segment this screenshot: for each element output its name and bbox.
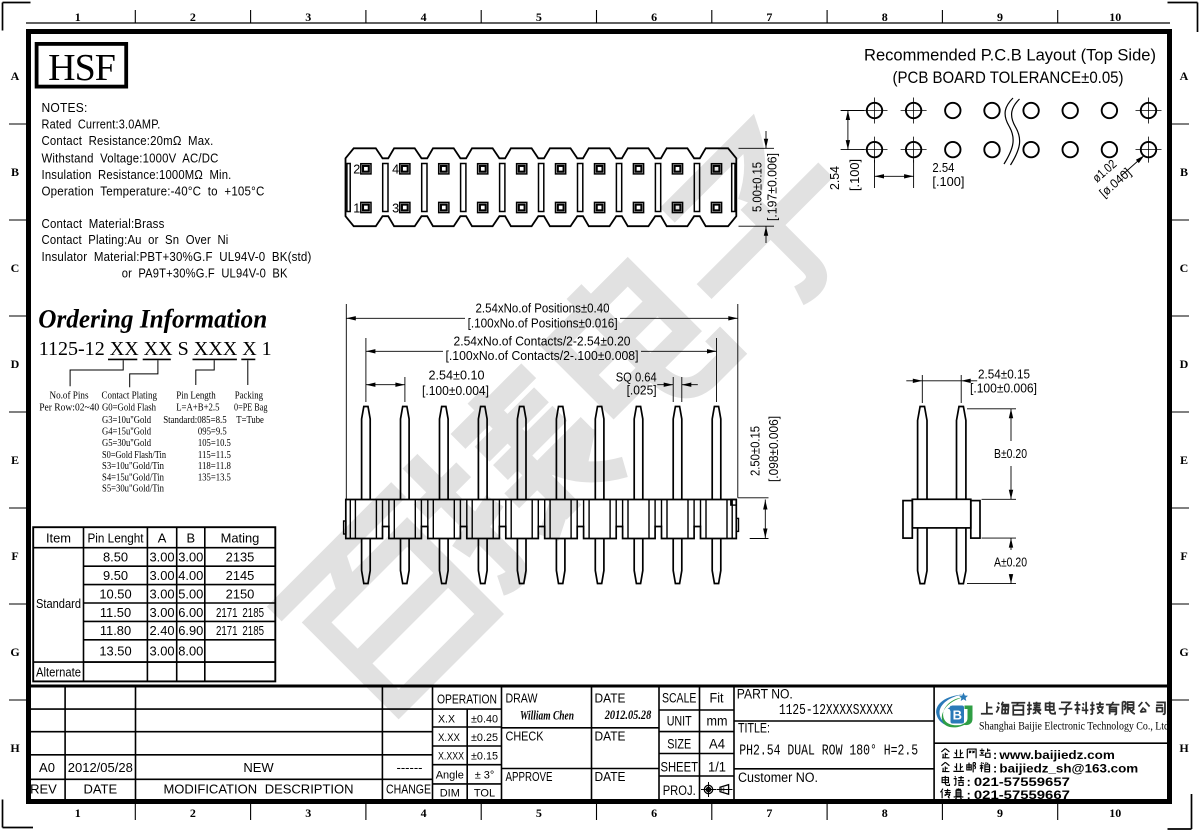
svg-text:Ordering Information: Ordering Information — [38, 304, 267, 334]
svg-text:6: 6 — [651, 806, 657, 820]
svg-text:1: 1 — [75, 10, 81, 24]
svg-text:A4: A4 — [709, 737, 725, 752]
svg-text:PART NO.: PART NO. — [737, 687, 793, 702]
svg-text:mm: mm — [707, 714, 728, 729]
svg-text:6.90: 6.90 — [178, 623, 203, 638]
svg-text:Withstand Voltage:1000V AC/DC: Withstand Voltage:1000V AC/DC — [42, 152, 219, 166]
svg-text:Insulator Material:PBT+30%G.F: Insulator Material:PBT+30%G.F UL94V-0 BK… — [42, 250, 312, 264]
svg-text:Packing: Packing — [235, 390, 264, 402]
svg-text:2.54: 2.54 — [932, 161, 954, 175]
svg-text:3.00: 3.00 — [149, 644, 174, 659]
svg-text:1/1: 1/1 — [708, 760, 726, 775]
svg-text:2012/05/28: 2012/05/28 — [68, 760, 133, 775]
svg-text:±0.25: ±0.25 — [471, 732, 498, 744]
svg-text:No.of Pins: No.of Pins — [50, 390, 89, 402]
svg-text:CHECK: CHECK — [506, 729, 544, 744]
svg-text:Rated Current:3.0AMP.: Rated Current:3.0AMP. — [42, 118, 161, 132]
svg-text:A: A — [11, 69, 20, 83]
svg-text:105=10.5: 105=10.5 — [198, 437, 231, 449]
svg-text:Insulation Resistance:1000MΩ M: Insulation Resistance:1000MΩ Min. — [42, 168, 232, 182]
svg-text:3.00: 3.00 — [149, 605, 174, 620]
svg-text:C: C — [1180, 261, 1189, 275]
svg-text:2.54xNo.of Positions±0.40: 2.54xNo.of Positions±0.40 — [476, 301, 610, 316]
svg-text:1125-12XXXXSXXXXX: 1125-12XXXXSXXXXX — [779, 703, 893, 719]
svg-text:PROJ.: PROJ. — [663, 783, 696, 798]
svg-text:B: B — [186, 531, 195, 546]
svg-text::: : — [993, 748, 997, 762]
svg-text:8: 8 — [882, 806, 888, 820]
svg-text:Mating: Mating — [221, 531, 260, 546]
svg-text:B: B — [953, 708, 962, 723]
svg-text:Alternate: Alternate — [36, 664, 81, 679]
svg-text:www.baijiedz.com: www.baijiedz.com — [998, 748, 1114, 762]
svg-text:[.025]: [.025] — [627, 383, 657, 398]
svg-text:4: 4 — [421, 10, 427, 24]
svg-text:3: 3 — [305, 10, 311, 24]
svg-text:±0.15: ±0.15 — [471, 751, 498, 763]
svg-text:A0: A0 — [39, 760, 55, 775]
svg-text:C: C — [11, 261, 20, 275]
svg-text:118=11.8: 118=11.8 — [198, 460, 231, 472]
svg-text:Pin Lenght: Pin Lenght — [88, 531, 144, 546]
svg-text:MODIFICATION DESCRIPTION: MODIFICATION DESCRIPTION — [163, 782, 353, 797]
svg-text:DRAW: DRAW — [506, 691, 539, 706]
svg-text:DIM: DIM — [440, 788, 460, 800]
svg-text:X.XXX: X.XXX — [438, 751, 465, 763]
svg-text:1: 1 — [75, 806, 81, 820]
svg-text:2171 2185: 2171 2185 — [216, 605, 264, 620]
svg-text:S5=30u"Gold/Tin: S5=30u"Gold/Tin — [102, 483, 164, 495]
svg-text:10.50: 10.50 — [99, 586, 131, 601]
svg-text:[.100±0.006]: [.100±0.006] — [970, 382, 1037, 396]
svg-text:SIZE: SIZE — [667, 737, 691, 752]
svg-text:G5=30u"Gold: G5=30u"Gold — [102, 437, 151, 449]
svg-text:9: 9 — [997, 10, 1003, 24]
svg-text:7: 7 — [766, 806, 772, 820]
svg-text:Contact Resistance:20mΩ Max.: Contact Resistance:20mΩ Max. — [42, 134, 214, 148]
svg-text:G3=10u"Gold: G3=10u"Gold — [102, 414, 151, 426]
svg-text::: : — [993, 762, 997, 776]
svg-text:D: D — [1180, 357, 1189, 371]
svg-text:X.X: X.X — [438, 713, 456, 725]
svg-text:or PA9T+30%G.F UL94V-0 BK: or PA9T+30%G.F UL94V-0 BK — [122, 266, 288, 280]
svg-text:DATE: DATE — [83, 782, 117, 797]
svg-text:Pin Length: Pin Length — [176, 390, 216, 402]
svg-text:Angle: Angle — [436, 770, 464, 782]
svg-text:2: 2 — [190, 806, 196, 820]
svg-text:9: 9 — [997, 806, 1003, 820]
svg-text:NEW: NEW — [243, 760, 274, 775]
svg-text:(PCB BOARD TOLERANCE±0.05): (PCB BOARD TOLERANCE±0.05) — [893, 68, 1124, 87]
svg-text:7: 7 — [766, 10, 772, 24]
svg-text:L=A+B+2.5: L=A+B+2.5 — [176, 402, 220, 414]
svg-text:Operation Temperature:-40°C to: Operation Temperature:-40°C to +105°C — [42, 185, 265, 199]
svg-text:2.54xNo.of Contacts/2-2.54±0.2: 2.54xNo.of Contacts/2-2.54±0.20 — [454, 333, 631, 348]
svg-text:REV: REV — [30, 782, 57, 797]
svg-text:B±0.20: B±0.20 — [994, 447, 1027, 461]
svg-text:±0.40: ±0.40 — [471, 713, 498, 725]
svg-text:G: G — [1179, 645, 1188, 659]
svg-text:------: ------ — [397, 760, 423, 775]
svg-text:Customer NO.: Customer NO. — [738, 770, 818, 785]
svg-text:HSF: HSF — [48, 47, 115, 89]
svg-text:[.100±0.004]: [.100±0.004] — [422, 383, 489, 398]
svg-text:[.100]: [.100] — [932, 175, 964, 189]
svg-text:baijiedz_sh@163.com: baijiedz_sh@163.com — [999, 762, 1138, 776]
svg-text:2: 2 — [353, 163, 360, 177]
svg-text:Contact Plating: Contact Plating — [102, 390, 158, 402]
svg-text:DATE: DATE — [595, 729, 626, 744]
svg-text:William Chen: William Chen — [520, 709, 574, 723]
svg-text:2.54±0.10: 2.54±0.10 — [429, 368, 485, 383]
svg-text:[.100]: [.100] — [848, 159, 862, 191]
svg-text:CHANGE: CHANGE — [386, 782, 431, 797]
svg-text:F: F — [11, 549, 18, 563]
svg-text:8.50: 8.50 — [103, 550, 128, 565]
svg-text:PH2.54 DUAL ROW 180° H=2.5: PH2.54 DUAL ROW 180° H=2.5 — [739, 744, 918, 760]
svg-text:4.00: 4.00 — [178, 568, 203, 583]
svg-text:021-57559667: 021-57559667 — [974, 788, 1070, 802]
svg-text:H: H — [1179, 741, 1189, 755]
svg-text:TITLE:: TITLE: — [738, 721, 770, 736]
svg-text:2.54±0.15: 2.54±0.15 — [978, 368, 1030, 382]
svg-text:11.80: 11.80 — [100, 623, 131, 638]
svg-text:13.50: 13.50 — [99, 644, 131, 659]
svg-text:A: A — [158, 531, 167, 546]
svg-text:1125-12 XX XX S XXX X 1: 1125-12 XX XX S XXX X 1 — [39, 338, 272, 360]
svg-text:G: G — [10, 645, 19, 659]
svg-text:0=PE Bag: 0=PE Bag — [234, 402, 268, 414]
svg-text:2.50±0.15: 2.50±0.15 — [749, 426, 763, 476]
svg-text:Item: Item — [46, 531, 71, 546]
svg-text:Fit: Fit — [710, 691, 724, 706]
svg-text:5: 5 — [536, 806, 542, 820]
svg-text:2150: 2150 — [226, 586, 255, 601]
svg-text:OPERATION: OPERATION — [437, 692, 497, 707]
svg-text:E: E — [1180, 453, 1188, 467]
svg-text:2.40: 2.40 — [149, 623, 174, 638]
svg-text:Standard: Standard — [36, 596, 81, 611]
svg-text:± 3°: ± 3° — [475, 770, 495, 782]
svg-text:4: 4 — [392, 163, 399, 177]
svg-text:2145: 2145 — [226, 568, 255, 583]
svg-text:8.00: 8.00 — [178, 644, 203, 659]
svg-text:11.50: 11.50 — [100, 605, 131, 620]
svg-text:3: 3 — [305, 806, 311, 820]
svg-text:[.197±0.006]: [.197±0.006] — [766, 153, 780, 221]
svg-text:2171 2185: 2171 2185 — [216, 623, 264, 638]
svg-text:9.50: 9.50 — [103, 568, 128, 583]
svg-text:2135: 2135 — [226, 550, 255, 565]
svg-text:Shanghai Baijie Electronic Tec: Shanghai Baijie Electronic Technology Co… — [979, 721, 1169, 733]
svg-text:10: 10 — [1109, 806, 1121, 820]
svg-text:Per Row:02~40: Per Row:02~40 — [39, 402, 99, 414]
svg-text:1: 1 — [353, 201, 360, 215]
svg-text:3: 3 — [392, 201, 399, 215]
svg-text:G4=15u"Gold: G4=15u"Gold — [102, 425, 151, 437]
svg-text:F: F — [1180, 549, 1187, 563]
svg-text:Contact Material:Brass: Contact Material:Brass — [42, 217, 165, 231]
svg-text:3.00: 3.00 — [149, 586, 174, 601]
svg-text:2.54: 2.54 — [828, 166, 842, 190]
svg-text:6.00: 6.00 — [178, 605, 203, 620]
svg-text:5.00±0.15: 5.00±0.15 — [751, 162, 765, 212]
svg-text:Recommended P.C.B Layout (Top: Recommended P.C.B Layout (Top Side) — [864, 46, 1156, 65]
svg-text:A: A — [1180, 69, 1189, 83]
svg-text:3.00: 3.00 — [149, 568, 174, 583]
svg-text:[.098±0.006]: [.098±0.006] — [767, 416, 781, 482]
svg-text:8: 8 — [882, 10, 888, 24]
svg-text:DATE: DATE — [595, 691, 626, 706]
svg-text:TOL: TOL — [474, 788, 495, 800]
svg-text:G0=Gold Flash: G0=Gold Flash — [102, 402, 156, 414]
svg-text:A±0.20: A±0.20 — [994, 556, 1027, 570]
svg-text:5.00: 5.00 — [178, 586, 203, 601]
svg-text:B: B — [11, 165, 19, 179]
svg-text:[.100xNo.of Contacts/2-.100±0.: [.100xNo.of Contacts/2-.100±0.008] — [446, 348, 639, 363]
svg-text:D: D — [11, 357, 20, 371]
svg-text:DATE: DATE — [595, 769, 626, 784]
svg-text:X.XX: X.XX — [438, 732, 461, 744]
svg-text::: : — [967, 788, 971, 802]
svg-text:135=13.5: 135=13.5 — [198, 471, 231, 483]
svg-text:Standard:085=8.5: Standard:085=8.5 — [163, 414, 227, 426]
svg-text:SHEET: SHEET — [660, 760, 698, 775]
svg-text:NOTES:: NOTES: — [42, 101, 88, 115]
svg-text:[.100xNo.of Positions±0.016]: [.100xNo.of Positions±0.016] — [468, 316, 618, 331]
svg-text:SCALE: SCALE — [662, 691, 697, 706]
svg-text:H: H — [10, 741, 20, 755]
svg-text:Contact Plating:Au or Sn Over: Contact Plating:Au or Sn Over Ni — [42, 233, 229, 247]
svg-text:5: 5 — [536, 10, 542, 24]
svg-text:APPROVE: APPROVE — [506, 769, 553, 784]
svg-text:6: 6 — [651, 10, 657, 24]
svg-text:3.00: 3.00 — [178, 550, 203, 565]
svg-text:3.00: 3.00 — [149, 550, 174, 565]
svg-text:2012.05.28: 2012.05.28 — [604, 708, 652, 722]
svg-text:T=Tube: T=Tube — [236, 414, 264, 426]
svg-text:2: 2 — [190, 10, 196, 24]
svg-text:095=9.5: 095=9.5 — [198, 425, 227, 437]
svg-text:4: 4 — [421, 806, 427, 820]
svg-text:UNIT: UNIT — [667, 714, 692, 729]
svg-text:B: B — [1180, 165, 1188, 179]
svg-text:S3=10u"Gold/Tin: S3=10u"Gold/Tin — [102, 460, 164, 472]
svg-text:E: E — [11, 453, 19, 467]
svg-text:10: 10 — [1109, 10, 1121, 24]
